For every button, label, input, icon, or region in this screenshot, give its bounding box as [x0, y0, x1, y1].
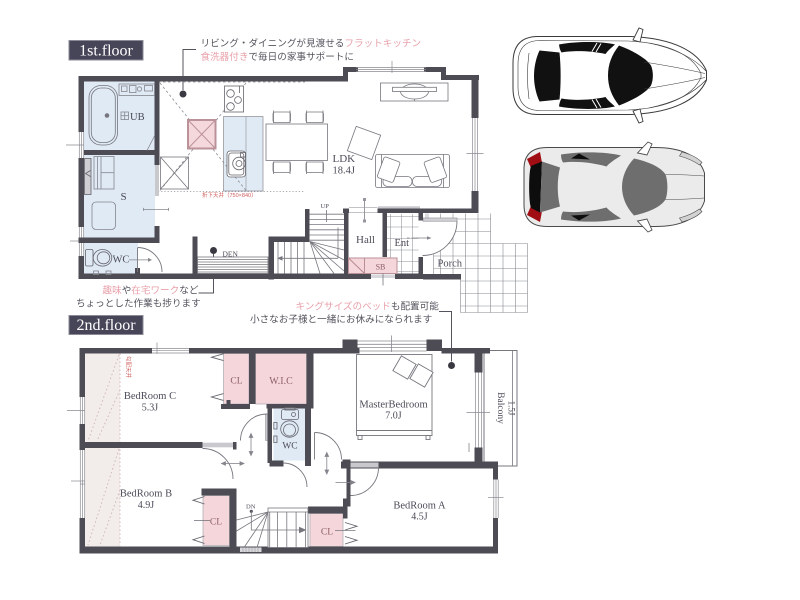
svg-text:1st.floor: 1st.floor	[79, 43, 133, 60]
svg-text:5.3J: 5.3J	[142, 403, 159, 414]
svg-text:WC: WC	[282, 442, 297, 452]
svg-text:Balcony: Balcony	[495, 392, 505, 424]
svg-text:UB: UB	[130, 112, 145, 123]
svg-text:S: S	[121, 191, 127, 203]
svg-text:18.4J: 18.4J	[333, 166, 355, 177]
svg-text:2nd.floor: 2nd.floor	[76, 317, 136, 334]
svg-text:BedRoom B: BedRoom B	[120, 489, 172, 500]
svg-text:Hall: Hall	[356, 234, 375, 246]
svg-text:MasterBedroom: MasterBedroom	[359, 400, 427, 411]
svg-text:4.5J: 4.5J	[411, 512, 428, 523]
svg-text:DEN: DEN	[223, 250, 239, 259]
svg-text:Ent: Ent	[395, 238, 410, 249]
svg-text:食洗器付きで毎日の家事サポートに: 食洗器付きで毎日の家事サポートに	[201, 51, 355, 63]
svg-text:CL: CL	[230, 377, 242, 387]
svg-text:趣味や在宅ワークなど: 趣味や在宅ワークなど	[103, 285, 199, 297]
svg-text:勾配天井: 勾配天井	[125, 356, 133, 379]
svg-text:W.I.C: W.I.C	[269, 376, 293, 387]
svg-text:4.9J: 4.9J	[138, 500, 155, 511]
svg-text:キングサイズのベッドも配置可能: キングサイズのベッドも配置可能	[296, 301, 440, 313]
svg-text:折下天井（750×840）: 折下天井（750×840）	[202, 191, 257, 199]
svg-text:SB: SB	[376, 263, 386, 272]
svg-text:小さなお子様と一緒にお休みになられます: 小さなお子様と一緒にお休みになられます	[250, 314, 432, 326]
svg-text:DN: DN	[246, 504, 256, 511]
svg-text:BedRoom C: BedRoom C	[124, 391, 176, 402]
svg-text:7.0J: 7.0J	[385, 411, 402, 422]
svg-text:BedRoom A: BedRoom A	[393, 501, 446, 512]
svg-text:リビング・ダイニングが見渡せるフラットキッチン: リビング・ダイニングが見渡せるフラットキッチン	[201, 38, 422, 50]
svg-text:Porch: Porch	[438, 259, 463, 270]
svg-text:ちょっとした作業も捗ります: ちょっとした作業も捗ります	[76, 298, 201, 310]
svg-text:UP: UP	[321, 203, 330, 210]
svg-text:1.5J: 1.5J	[507, 401, 517, 416]
svg-text:CL: CL	[210, 518, 222, 528]
svg-text:CL: CL	[321, 528, 333, 538]
svg-text:WC: WC	[113, 255, 130, 266]
svg-text:LDK: LDK	[333, 153, 356, 165]
